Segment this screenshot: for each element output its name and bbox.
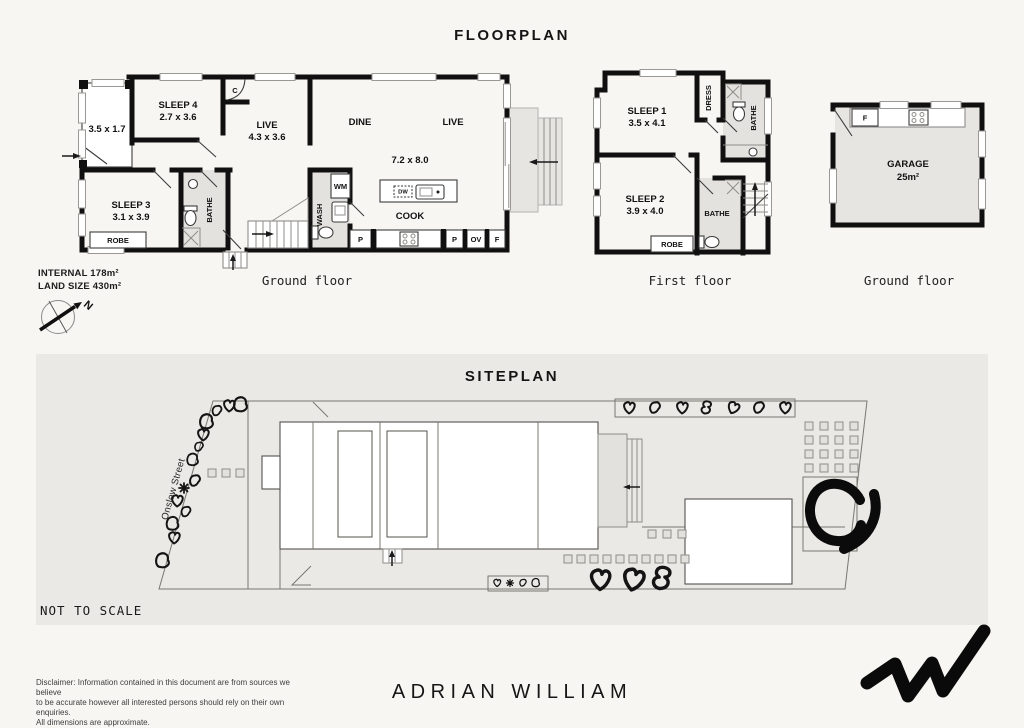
dw-label: DW [398,190,408,196]
sleep3-dim-label: 3.1 x 3.9 [113,212,150,223]
brand-squiggle-logo [856,618,996,718]
live-dim-label: 4.3 x 3.6 [249,132,286,143]
cook-label: COOK [396,211,425,222]
open-dim-label: 7.2 x 8.0 [392,155,429,166]
page-title: FLOORPLAN [0,27,1024,44]
garage-area-label: 25m² [897,172,919,183]
garage-floor-caption: Ground floor [814,273,1004,288]
stove-icon [400,232,418,246]
closet-label: C [232,86,238,95]
dress-label: DRESS [704,85,713,111]
sink-icon [749,148,757,156]
disclaimer-line: All dimensions are approximate. [36,718,296,728]
internal-area-label: INTERNAL 178m² [38,267,121,280]
toilet-icon [184,206,197,226]
sleep2-label: SLEEP 2 [626,194,665,205]
not-to-scale-label: NOT TO SCALE [40,603,142,618]
pantry2-label: P [452,235,457,244]
first-floor-caption: First floor [595,273,785,288]
garage-plan: GARAGE 25m² F [825,95,990,235]
tree-scribble [810,484,876,549]
dine-label: DINE [349,117,372,128]
fridge-label: F [863,114,868,123]
live2-label: LIVE [442,117,463,128]
sleep2-dim-label: 3.9 x 4.0 [627,206,664,217]
laundry-sink-icon [332,202,348,222]
north-arrow [40,307,75,331]
compass-icon: N [36,293,98,341]
island-sink-icon [416,185,444,199]
kitchen-island [380,180,457,202]
stove-icon [909,110,928,125]
site-deck [598,434,642,527]
entry-steps [223,252,247,270]
toilet-icon [312,226,333,239]
wash-label: WASH [315,204,324,227]
sleep1-dim-label: 3.5 x 4.1 [629,118,667,129]
porch-dim-label: 3.5 x 1.7 [89,124,126,135]
toilet-icon [699,236,719,248]
floorplan-document: FLOORPLAN [0,0,1024,724]
bathe1-label: BATHE [749,105,758,130]
sink-icon [189,180,198,189]
kitchen-bench [350,229,505,250]
sleep3-label: SLEEP 3 [112,200,151,211]
sleep4-label: SLEEP 4 [159,100,199,111]
house-footprint [262,422,598,549]
fridge-label: F [495,235,500,244]
front-steps [383,549,402,566]
sleep1-label: SLEEP 1 [628,106,668,117]
first-floor-plan: SLEEP 1 3.5 x 4.1 DRESS BATHE SLEEP 2 3.… [585,60,785,265]
siteplan-drawing: Onslow Street [36,354,988,625]
north-label: N [81,299,95,313]
toilet-icon [733,102,745,121]
sleep4-dim-label: 2.7 x 3.6 [160,112,197,123]
garage-label: GARAGE [887,159,929,170]
area-summary: INTERNAL 178m² LAND SIZE 430m² [38,267,121,293]
hedge-row [615,399,795,417]
pantry1-label: P [358,235,363,244]
rear-deck [505,108,562,212]
wm-label: WM [334,182,347,191]
ground-floor-plan: 3.5 x 1.7 SLEEP 4 2.7 x 3.6 C LIVE 4.3 x… [60,60,570,275]
oven-label: OV [471,235,482,244]
robe-label: ROBE [661,240,683,249]
rear-shrubs [488,567,670,591]
robe-label: ROBE [107,236,129,245]
siteplan-section: SITEPLAN [36,354,988,625]
land-size-label: LAND SIZE 430m² [38,280,121,293]
stairs [248,198,308,248]
live-label: LIVE [256,120,277,131]
ground-floor-caption: Ground floor [212,273,402,288]
bathe-label: BATHE [205,197,214,222]
bathe2-label: BATHE [704,209,729,218]
site-garage [685,499,792,584]
